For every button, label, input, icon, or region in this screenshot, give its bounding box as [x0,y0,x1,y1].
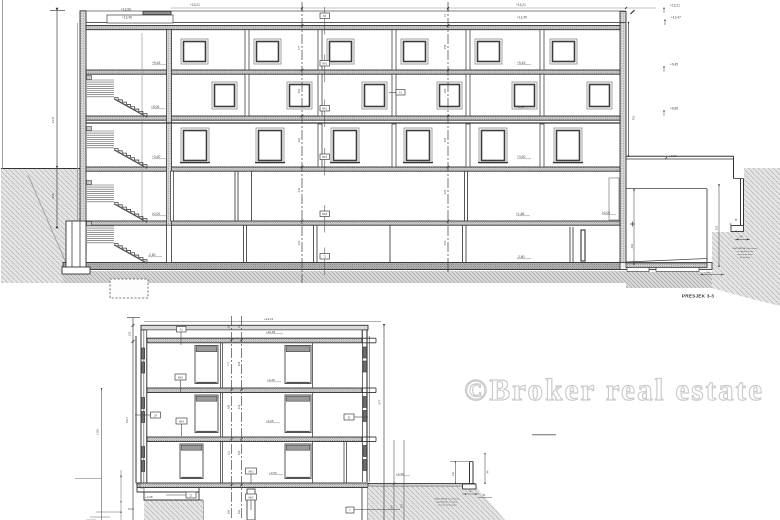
svg-text:280: 280 [227,404,231,409]
svg-text:+9,45: +9,45 [267,378,275,382]
svg-text:MK2: MK2 [322,63,328,66]
svg-text:MK4: MK4 [179,421,185,424]
svg-text:322: 322 [443,189,447,194]
svg-text:102: 102 [237,509,241,514]
svg-text:+12,65: +12,65 [266,330,276,334]
svg-text:291: 291 [297,137,301,142]
svg-text:MK3: MK3 [249,471,255,474]
svg-text:+9,45: +9,45 [152,61,161,65]
svg-text:+3,50: +3,50 [669,154,677,158]
svg-text:260: 260 [297,240,301,245]
svg-text:uz ogradni zid se: uz ogradni zid se [737,250,754,253]
svg-text:291: 291 [443,137,447,142]
svg-text:335: 335 [400,503,404,508]
svg-text:+13,45: +13,45 [122,15,132,19]
svg-text:ugostiteljsko se spusta: ugostiteljsko se spusta [436,501,459,504]
svg-text:136: 136 [128,331,132,336]
svg-text:56: 56 [227,325,231,328]
svg-text:+3,50: +3,50 [152,155,161,159]
svg-text:282: 282 [297,88,301,93]
svg-text:+6,06: +6,06 [516,105,525,109]
svg-text:+6,06: +6,06 [151,105,160,109]
svg-text:+13,21: +13,21 [670,4,680,8]
svg-text:305: 305 [715,225,719,230]
svg-text:1347: 1347 [51,116,55,123]
svg-text:1382: 1382 [96,429,100,435]
svg-text:+3,50: +3,50 [517,155,526,159]
svg-text:292: 292 [630,243,634,248]
svg-text:365: 365 [51,193,55,198]
svg-text:spusta niz teren: spusta niz teren [737,253,753,256]
svg-text:NAPOMENA: kota terena: NAPOMENA: kota terena [733,247,758,250]
svg-text:250: 250 [237,450,241,455]
svg-text:300: 300 [227,509,231,514]
svg-text:+3,50: +3,50 [269,471,277,475]
svg-text:+9,45: +9,45 [517,61,526,65]
svg-text:877: 877 [378,399,382,404]
svg-text:258: 258 [443,44,447,49]
svg-text:MK1: MK1 [322,108,328,111]
svg-text:MK2: MK2 [249,497,255,500]
svg-text:72: 72 [237,325,241,328]
svg-text:-2,80: -2,80 [148,253,156,257]
svg-text:+13,21: +13,21 [264,317,274,321]
svg-text:777: 777 [227,361,231,366]
svg-text:+12,47: +12,47 [671,16,681,20]
svg-text:216: 216 [237,404,241,409]
svg-text:©Broker real estate: ©Broker real estate [464,372,764,407]
svg-text:+6,65: +6,65 [266,419,274,423]
svg-text:+3,40: +3,40 [396,472,404,476]
svg-text:MK0: MK0 [322,213,328,216]
svg-text:280: 280 [443,88,447,93]
svg-text:310: 310 [297,187,301,192]
svg-text:777: 777 [297,45,301,50]
svg-text:72: 72 [443,14,447,18]
svg-text:+13,21: +13,21 [190,3,200,7]
svg-text:MK1: MK1 [322,156,328,159]
svg-text:111: 111 [227,450,231,455]
svg-text:208: 208 [237,361,241,366]
svg-text:50,28: 50,28 [128,509,134,511]
svg-text:+13,96: +13,96 [121,7,131,11]
svg-text:+1,86: +1,86 [516,212,525,216]
svg-text:751: 751 [632,115,636,120]
svg-text:uz teren do knauba: uz teren do knauba [438,504,458,507]
svg-text:130: 130 [452,471,455,476]
svg-text:1017: 1017 [125,416,129,423]
svg-text:+12,45: +12,45 [517,15,527,19]
svg-text:+13,21: +13,21 [516,3,526,7]
svg-text:±0,00: ±0,00 [152,212,160,216]
svg-text:-2,80: -2,80 [517,255,525,259]
svg-text:347: 347 [390,504,394,509]
svg-text:do knauba: do knauba [740,257,751,259]
svg-text:+2,08: +2,08 [145,495,153,499]
svg-text:NAPOMENA: kota terena: NAPOMENA: kota terena [435,498,460,501]
svg-text:±0,00: ±0,00 [602,211,610,215]
svg-text:+9,45: +9,45 [670,62,678,66]
svg-text:PRESJEK 3-3: PRESJEK 3-3 [682,294,714,299]
svg-text:250: 250 [443,240,447,245]
svg-text:+6,85: +6,85 [670,106,678,110]
svg-text:MK5: MK5 [178,377,184,380]
